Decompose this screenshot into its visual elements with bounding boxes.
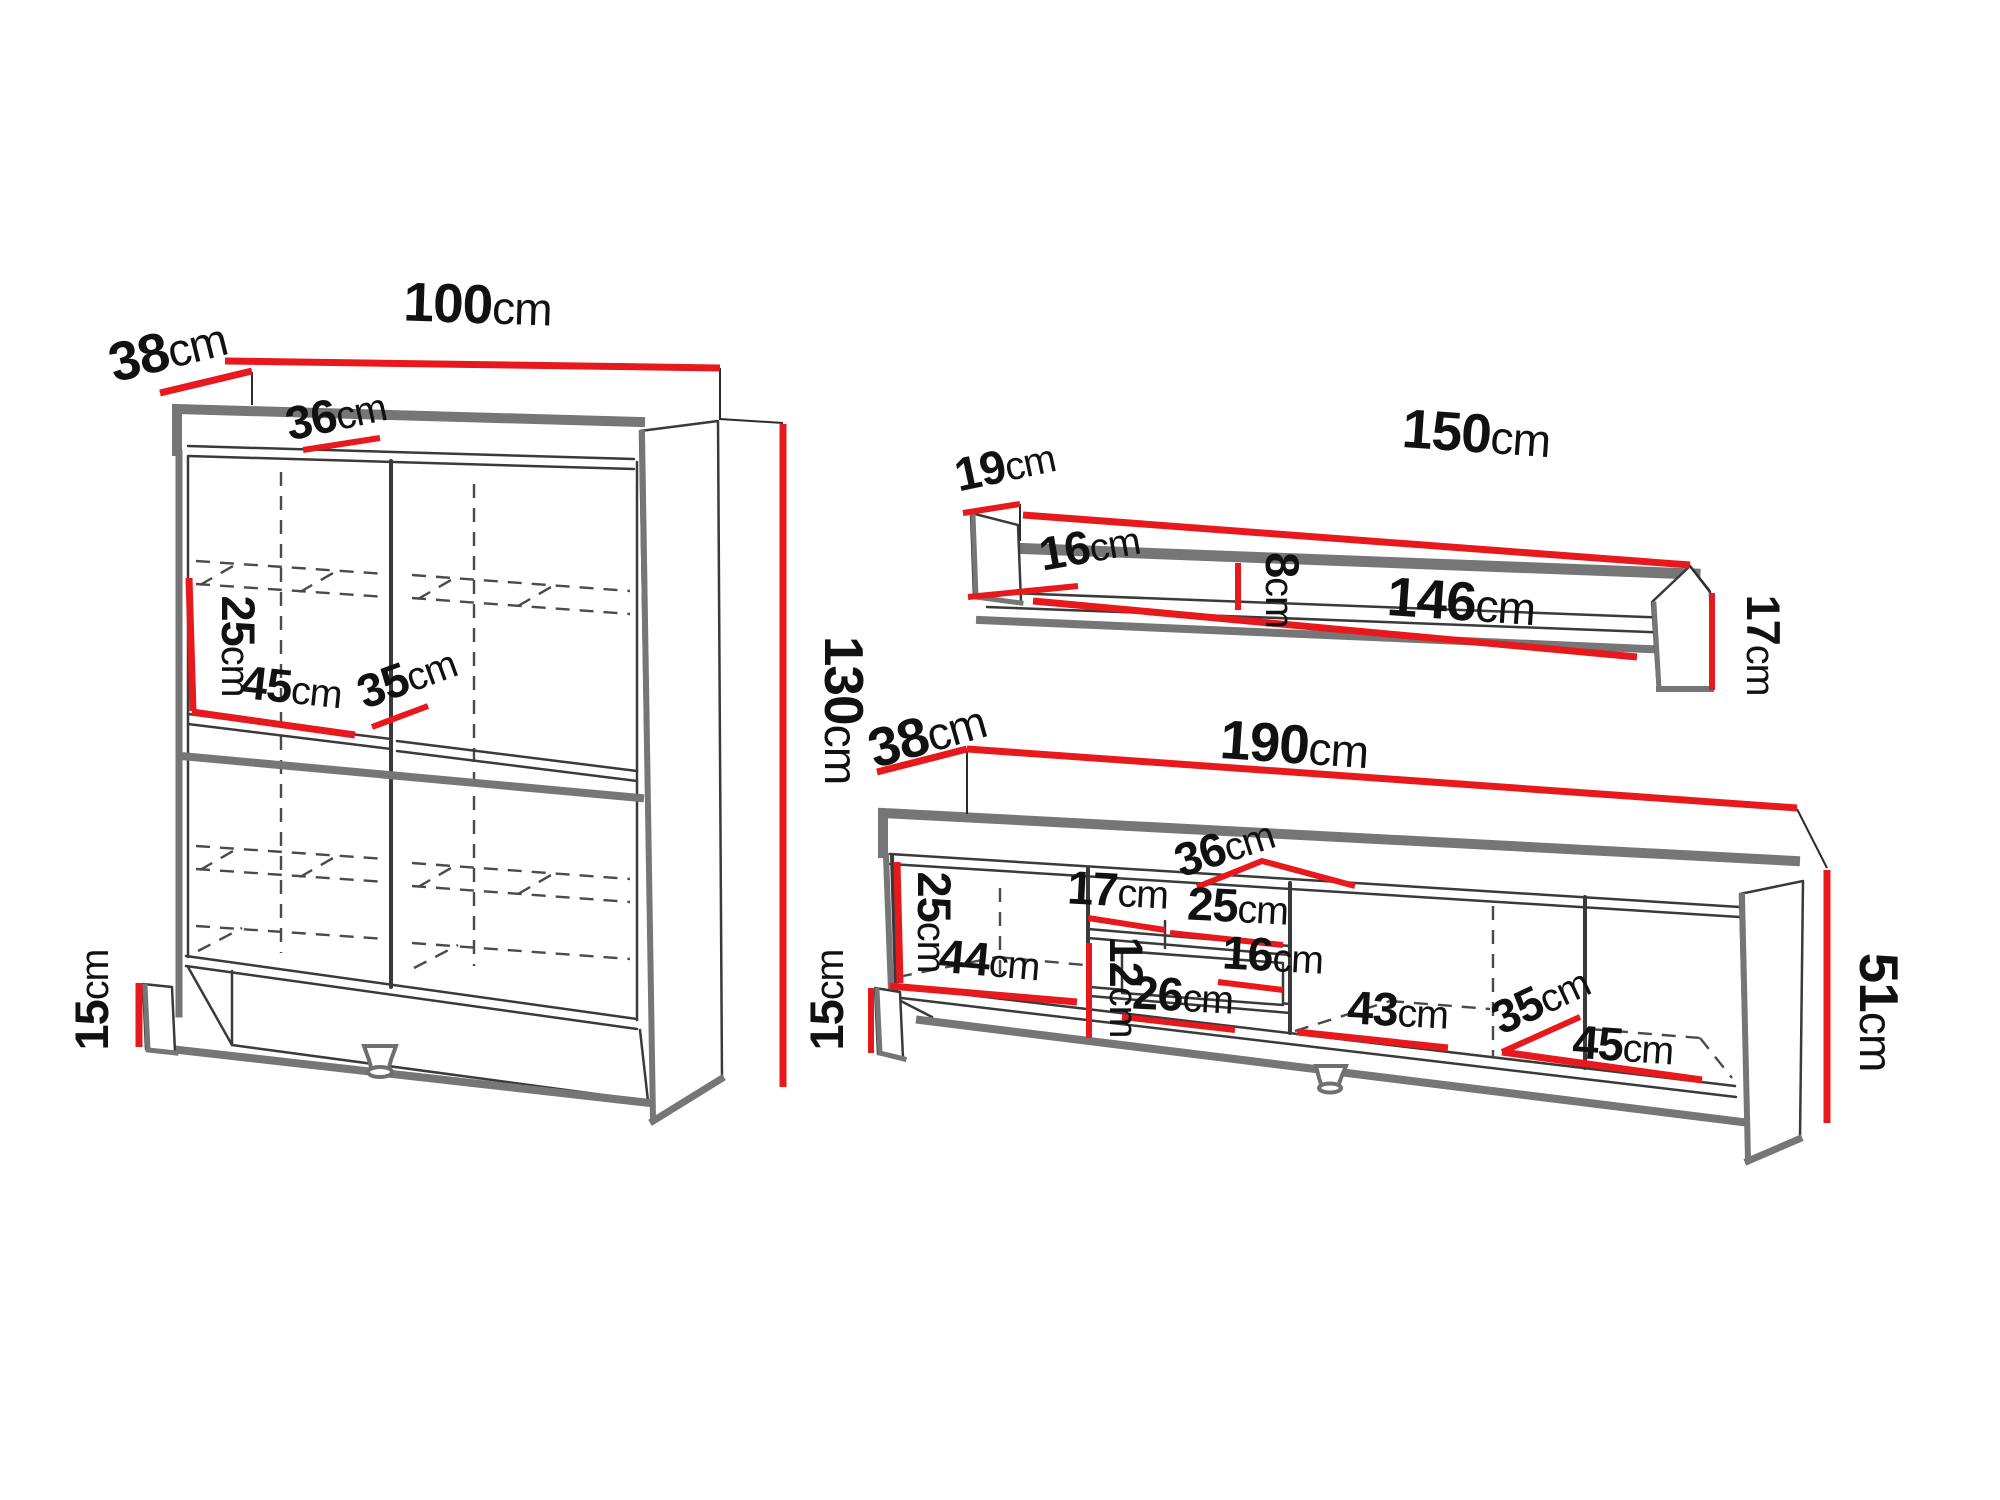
tv-stand-mid-width-label: 43cm (1346, 980, 1450, 1038)
tv-stand-height-label: 51cm (1848, 953, 1910, 1072)
tv-stand-niche-top-dim-line (1088, 918, 1165, 930)
cabinet-shelf-depth-label: 35cm (350, 634, 463, 718)
tv-stand-width-label: 190cm (1218, 708, 1370, 780)
tv-stand-inner-height-dim-line (897, 862, 900, 983)
shelf-depth-dim-line (963, 504, 1020, 513)
tv-stand-niche-top-label: 17cm (1066, 860, 1170, 918)
cabinet-plinth-label: 15cm (65, 950, 118, 1051)
cabinet-outline (143, 409, 722, 1122)
furniture-dimensions-page: 38cm 100cm 36cm 25cm 45cm 35cm 130cm 15c… (0, 0, 2000, 1500)
tv-stand-niche-inner-label: 16cm (1221, 925, 1325, 983)
cabinet-width-label: 100cm (402, 270, 552, 337)
cabinet-width-dim-line (225, 361, 720, 368)
cabinet-left-width-label: 45cm (239, 655, 345, 718)
tv-stand-depth-label: 38cm (861, 688, 992, 780)
tv-stand-ext-line-right (1797, 809, 1827, 868)
furniture-dimensions-diagram: 38cm 100cm 36cm 25cm 45cm 35cm 130cm 15c… (0, 0, 2000, 1500)
tv-stand-right-width-label: 45cm (1571, 1015, 1675, 1075)
cabinet-drawing: 38cm 100cm 36cm 25cm 45cm 35cm 130cm 15c… (65, 270, 875, 1122)
cabinet-height-label: 130cm (813, 636, 875, 784)
tv-stand-plinth-label: 15cm (800, 950, 853, 1051)
wall-shelf-drawing: 19cm 150cm 16cm 8cm 146cm 17cm (950, 397, 1790, 696)
shelf-height-label: 17cm (1737, 595, 1790, 696)
shelf-depth-label: 19cm (950, 428, 1060, 501)
tv-stand-width-dim-line (967, 749, 1797, 808)
tv-stand-outline (875, 813, 1803, 1162)
shelf-width-label: 150cm (1400, 397, 1552, 469)
cabinet-ext-line-right (720, 368, 783, 423)
cabinet-shelf-height-dim-line (189, 578, 193, 711)
shelf-inner-height-label: 8cm (1256, 552, 1309, 628)
tv-stand-left-width-label: 44cm (937, 929, 1042, 991)
shelf-inner-width-label: 146cm (1385, 565, 1537, 637)
tv-stand-drawing: 38cm 190cm 36cm 25cm 15cm 44cm 17cm 25cm… (800, 688, 1910, 1162)
